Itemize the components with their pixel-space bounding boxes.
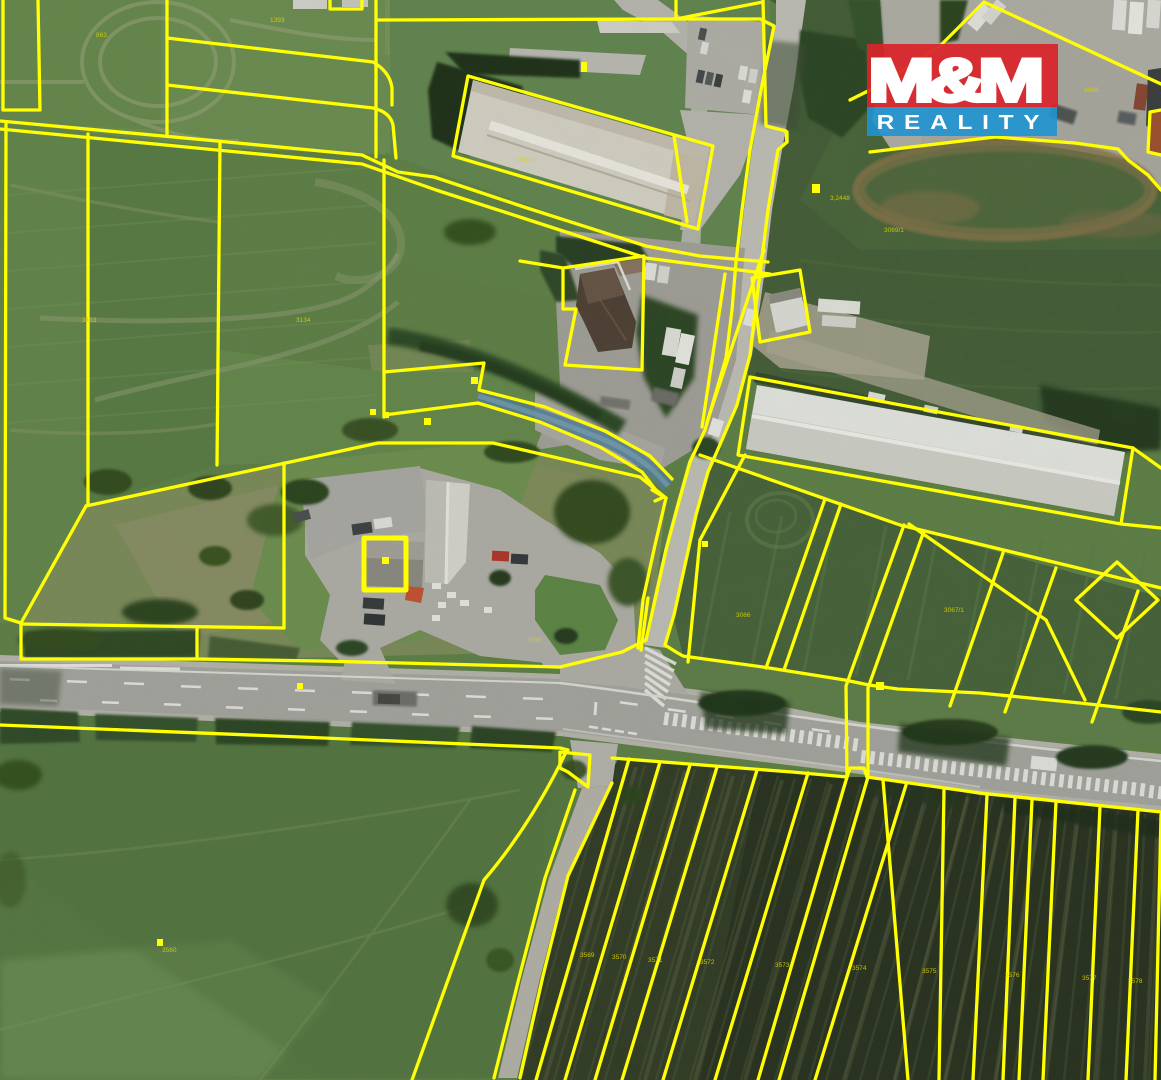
svg-text:3570: 3570 [612, 954, 627, 961]
svg-text:3068: 3068 [1084, 87, 1099, 94]
svg-text:3066: 3066 [736, 612, 751, 619]
svg-text:3572: 3572 [700, 959, 715, 966]
svg-text:3573: 3573 [775, 962, 790, 969]
svg-text:3133: 3133 [82, 317, 97, 324]
svg-text:3035: 3035 [527, 637, 542, 644]
svg-text:3577: 3577 [1082, 975, 1097, 982]
svg-text:863: 863 [96, 32, 107, 39]
svg-text:M&M: M&M [868, 46, 1039, 113]
svg-text:3569: 3569 [580, 952, 595, 959]
svg-text:3578: 3578 [1128, 978, 1143, 985]
svg-text:3560: 3560 [162, 947, 177, 954]
svg-text:3571: 3571 [648, 957, 663, 964]
svg-text:3576: 3576 [1005, 972, 1020, 979]
svg-text:3574: 3574 [852, 965, 867, 972]
svg-text:3134: 3134 [296, 317, 311, 324]
svg-text:REALITY: REALITY [877, 111, 1050, 133]
svg-text:3067/1: 3067/1 [944, 607, 964, 614]
svg-text:3069/1: 3069/1 [884, 227, 904, 234]
svg-text:3575: 3575 [922, 968, 937, 975]
svg-text:1390/2: 1390/2 [516, 157, 536, 164]
svg-text:3,2448: 3,2448 [830, 195, 850, 202]
svg-text:1393: 1393 [270, 17, 285, 24]
